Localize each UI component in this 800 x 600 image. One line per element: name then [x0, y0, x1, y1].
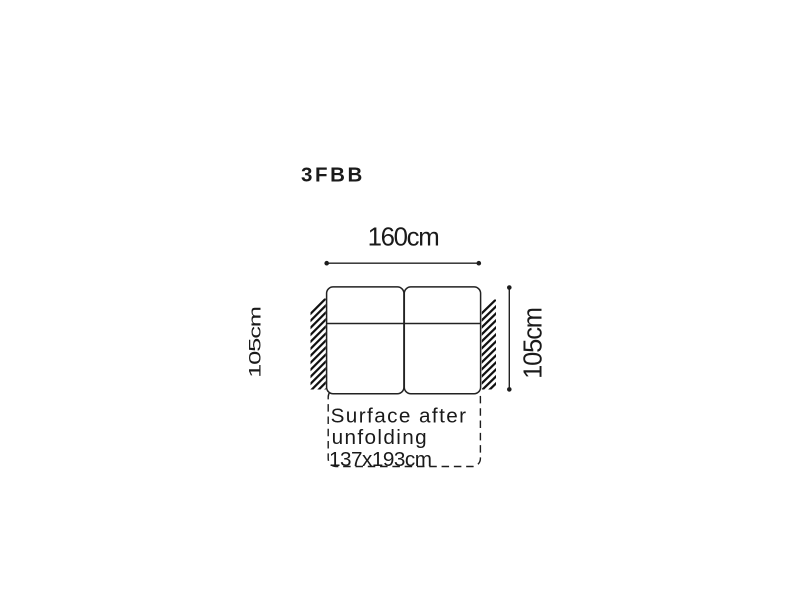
svg-text:Surface after: Surface after [331, 404, 468, 427]
svg-text:105cm: 105cm [519, 308, 547, 379]
svg-text:137x193cm: 137x193cm [329, 448, 431, 471]
svg-text:3FBB: 3FBB [301, 164, 365, 187]
svg-text:105cm: 105cm [246, 307, 264, 378]
svg-text:160cm: 160cm [368, 223, 439, 251]
svg-text:unfolding: unfolding [332, 426, 428, 449]
